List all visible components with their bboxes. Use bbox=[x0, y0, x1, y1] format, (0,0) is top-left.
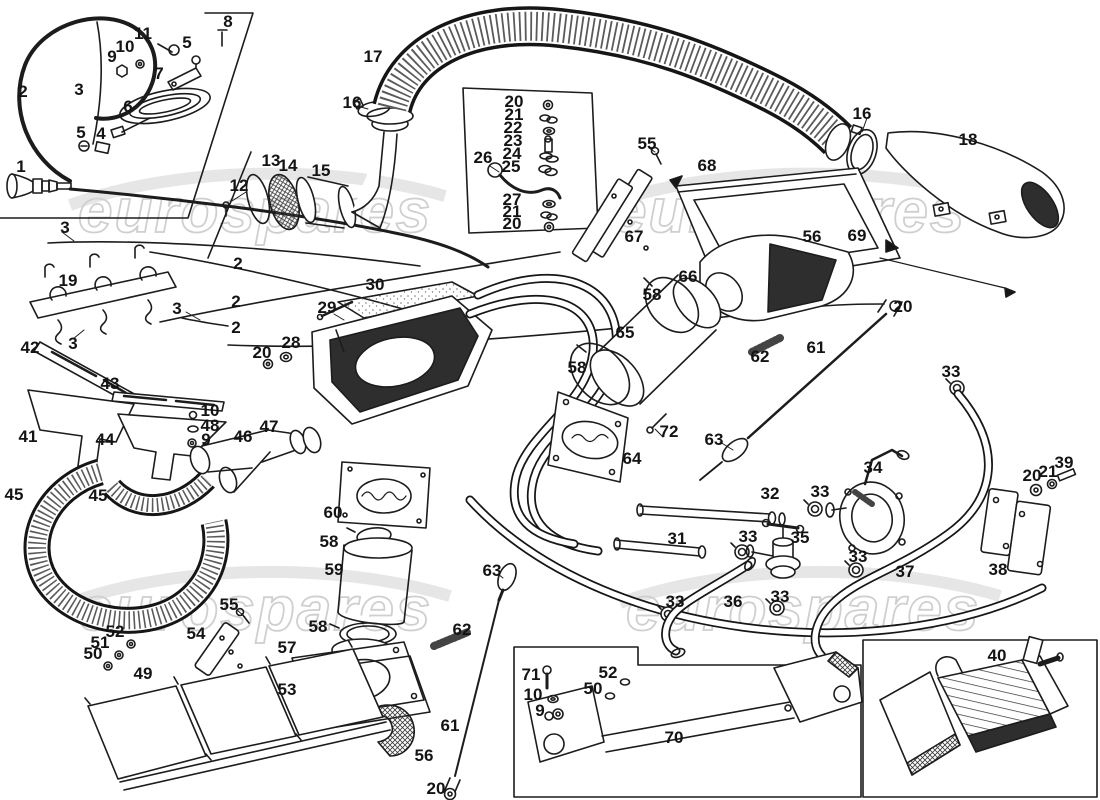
part-number-label: 9 bbox=[535, 701, 544, 720]
part-number-label: 61 bbox=[441, 716, 460, 735]
part-number-label: 53 bbox=[278, 680, 297, 699]
part-number-label: 61 bbox=[807, 338, 826, 357]
part-number-label: 59 bbox=[325, 560, 344, 579]
parts-diagram-page: eurospareseurospareseurospareseurospares bbox=[0, 0, 1100, 800]
control-rod-61-right bbox=[700, 300, 902, 480]
part-number-label: 44 bbox=[96, 430, 115, 449]
part-number-label: 16 bbox=[853, 104, 872, 123]
part-number-label: 2 bbox=[233, 254, 242, 273]
fastener-stack-inset bbox=[488, 101, 560, 232]
part-number-label: 34 bbox=[864, 458, 883, 477]
part-number-label: 42 bbox=[21, 338, 40, 357]
water-pipes bbox=[614, 504, 785, 558]
part-number-label: 69 bbox=[848, 226, 867, 245]
part-number-label: 46 bbox=[234, 427, 253, 446]
part-number-label: 33 bbox=[771, 587, 790, 606]
part-number-label: 4 bbox=[96, 124, 106, 143]
part-number-label: 5 bbox=[182, 33, 191, 52]
part-number-label: 19 bbox=[59, 271, 78, 290]
part-number-label: 67 bbox=[625, 227, 644, 246]
part-number-label: 45 bbox=[5, 485, 24, 504]
part-number-label: 56 bbox=[803, 227, 822, 246]
part-number-label: 9 bbox=[107, 47, 116, 66]
part-number-label: 2 bbox=[18, 82, 27, 101]
housing-66 bbox=[698, 235, 853, 320]
part-number-label: 25 bbox=[502, 157, 521, 176]
part-number-label: 20 bbox=[253, 343, 272, 362]
part-number-label: 6 bbox=[123, 97, 132, 116]
part-number-label: 43 bbox=[101, 374, 120, 393]
exploded-parts-drawing: eurospareseurospareseurospareseurospares bbox=[0, 0, 1100, 800]
part-number-label: 41 bbox=[19, 427, 38, 446]
part-number-label: 37 bbox=[896, 562, 915, 581]
part-number-label: 10 bbox=[116, 37, 135, 56]
part-number-label: 35 bbox=[791, 528, 810, 547]
heater-box-30 bbox=[264, 282, 493, 424]
part-number-label: 49 bbox=[134, 664, 153, 683]
part-number-label: 3 bbox=[74, 80, 83, 99]
part-number-label: 62 bbox=[751, 347, 770, 366]
part-number-label: 7 bbox=[154, 64, 163, 83]
corrugated-hose-17 bbox=[392, 26, 855, 163]
part-number-label: 3 bbox=[60, 218, 69, 237]
part-number-label: 12 bbox=[230, 176, 249, 195]
part-number-label: 31 bbox=[668, 529, 687, 548]
part-number-label: 50 bbox=[84, 644, 103, 663]
part-number-label: 38 bbox=[989, 560, 1008, 579]
part-number-label: 72 bbox=[660, 422, 679, 441]
part-number-label: 2 bbox=[231, 318, 240, 337]
part-number-label: 60 bbox=[324, 503, 343, 522]
part-number-label: 15 bbox=[312, 161, 331, 180]
part-number-label: 63 bbox=[705, 430, 724, 449]
part-number-label: 16 bbox=[343, 93, 362, 112]
part-number-label: 33 bbox=[849, 547, 868, 566]
part-number-label: 47 bbox=[260, 417, 279, 436]
part-number-label: 39 bbox=[1055, 453, 1074, 472]
part-number-label: 57 bbox=[278, 638, 297, 657]
part-number-label: 54 bbox=[187, 624, 206, 643]
part-number-label: 63 bbox=[483, 561, 502, 580]
part-number-label: 62 bbox=[453, 620, 472, 639]
part-number-label: 64 bbox=[623, 449, 642, 468]
part-number-label: 30 bbox=[366, 275, 385, 294]
heater-radiator-40 bbox=[880, 637, 1068, 775]
part-number-label: 55 bbox=[638, 134, 657, 153]
part-number-label: 58 bbox=[309, 617, 328, 636]
line-art bbox=[0, 13, 1097, 800]
part-number-label: 33 bbox=[666, 592, 685, 611]
part-number-label: 70 bbox=[665, 728, 684, 747]
part-number-label: 5 bbox=[76, 123, 85, 142]
part-number-label: 2 bbox=[231, 292, 240, 311]
part-number-label: 33 bbox=[942, 362, 961, 381]
part-number-label: 65 bbox=[616, 323, 635, 342]
part-number-label: 20 bbox=[427, 779, 446, 798]
part-number-label: 66 bbox=[679, 267, 698, 286]
part-number-label: 45 bbox=[89, 486, 108, 505]
part-number-label: 20 bbox=[894, 297, 913, 316]
part-number-label: 56 bbox=[415, 746, 434, 765]
part-number-label: 1 bbox=[16, 157, 25, 176]
part-number-label: 36 bbox=[724, 592, 743, 611]
part-number-label: 8 bbox=[223, 12, 232, 31]
part-number-label: 55 bbox=[220, 595, 239, 614]
part-number-label: 11 bbox=[134, 24, 152, 43]
part-number-label: 28 bbox=[282, 333, 301, 352]
part-number-label: 40 bbox=[988, 646, 1007, 665]
part-number-label: 68 bbox=[698, 156, 717, 175]
part-number-label: 3 bbox=[68, 334, 77, 353]
panels-49 bbox=[85, 640, 390, 790]
part-number-label: 20 bbox=[503, 214, 522, 233]
part-number-label: 58 bbox=[568, 358, 587, 377]
part-number-label: 3 bbox=[172, 299, 181, 318]
bracket-70 bbox=[528, 652, 862, 762]
cable-3a bbox=[182, 318, 228, 326]
corrugated-hose-45b bbox=[112, 480, 207, 505]
mounting-bracket-19 bbox=[30, 245, 176, 344]
part-number-label: 58 bbox=[320, 532, 339, 551]
part-number-label: 17 bbox=[364, 47, 383, 66]
part-number-label: 33 bbox=[739, 527, 758, 546]
part-number-label: 14 bbox=[279, 156, 298, 175]
part-number-label: 18 bbox=[959, 130, 978, 149]
part-number-label: 29 bbox=[318, 298, 337, 317]
part-number-label: 32 bbox=[761, 484, 780, 503]
part-number-label: 33 bbox=[811, 482, 830, 501]
part-number-label: 50 bbox=[584, 679, 603, 698]
part-number-label: 71 bbox=[522, 665, 541, 684]
part-number-label: 9 bbox=[201, 430, 210, 449]
part-number-label: 26 bbox=[474, 148, 493, 167]
part-number-label: 58 bbox=[643, 285, 662, 304]
flange-64 bbox=[548, 392, 628, 482]
